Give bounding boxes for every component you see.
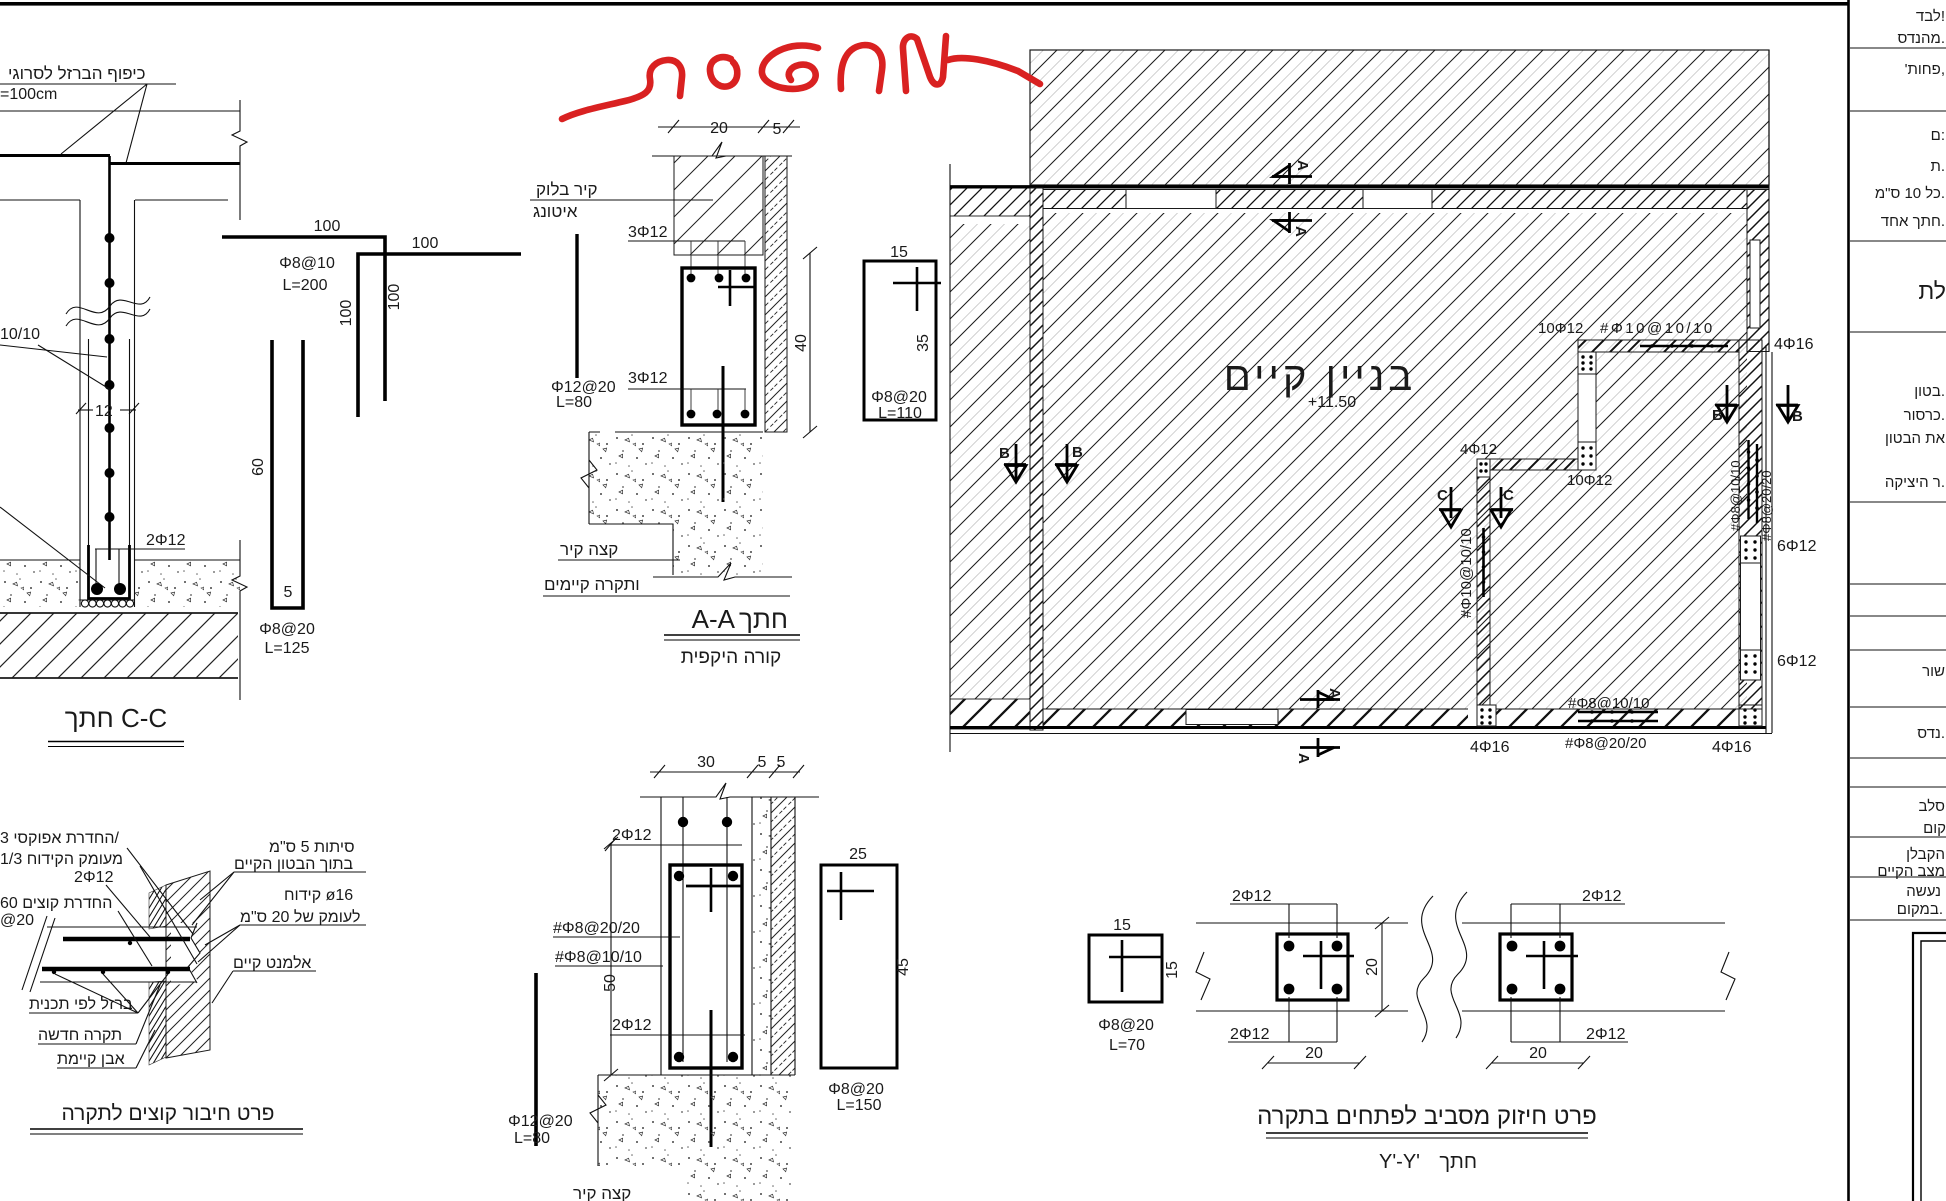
svg-text:#Φ8@10/10: #Φ8@10/10 xyxy=(555,949,642,966)
svg-text:Φ12@20: Φ12@20 xyxy=(508,1113,573,1130)
svg-text:שור: שור xyxy=(1922,663,1945,680)
svg-text:חתך: חתך xyxy=(739,604,788,634)
svg-text:#Φ8@10/10: #Φ8@10/10 xyxy=(1568,695,1649,712)
svg-text:קום: קום xyxy=(1923,820,1946,837)
svg-text:לעומק של 20 ס"מ: לעומק של 20 ס"מ xyxy=(240,908,361,926)
svg-text:100: 100 xyxy=(314,218,341,235)
svg-text:L=125: L=125 xyxy=(265,640,310,657)
svg-text:קצה קיר: קצה קיר xyxy=(560,540,618,559)
svg-text:2Φ12: 2Φ12 xyxy=(146,532,186,549)
svg-text:12: 12 xyxy=(95,403,113,420)
svg-text:5: 5 xyxy=(758,754,767,771)
svg-text:5: 5 xyxy=(777,754,786,771)
svg-text:5: 5 xyxy=(284,584,293,601)
svg-text:100: 100 xyxy=(338,300,355,327)
svg-text:כרסור.: כרסור. xyxy=(1904,407,1945,424)
svg-text:6Φ12: 6Φ12 xyxy=(1777,538,1817,555)
svg-text:בטון.: בטון. xyxy=(1914,383,1945,400)
svg-text:#Φ10@10/10: #Φ10@10/10 xyxy=(1458,528,1475,618)
svg-text:5: 5 xyxy=(773,121,782,138)
svg-text:Φ8@20: Φ8@20 xyxy=(828,1081,884,1098)
svg-text:@20: @20 xyxy=(0,912,34,929)
svg-text:4Φ16: 4Φ16 xyxy=(1712,739,1752,756)
svg-text:Y'-Y': Y'-Y' xyxy=(1379,1151,1420,1173)
svg-text:את הבטון: את הבטון xyxy=(1885,430,1946,447)
svg-text:סיתות 5 ס"מ: סיתות 5 ס"מ xyxy=(269,839,355,856)
svg-text:B: B xyxy=(1792,408,1803,425)
svg-text:A-A: A-A xyxy=(692,604,736,634)
svg-text:חתך אחד.: חתך אחד. xyxy=(1881,213,1945,230)
svg-text:4Φ16: 4Φ16 xyxy=(1470,739,1510,756)
svg-text:תקרה חדשה: תקרה חדשה xyxy=(38,1027,122,1044)
svg-text:Φ8@20: Φ8@20 xyxy=(259,621,315,638)
svg-text:15: 15 xyxy=(1113,917,1131,934)
svg-text:ברזל לפי תכנית: ברזל לפי תכנית xyxy=(29,995,133,1013)
svg-text:20: 20 xyxy=(1529,1045,1547,1062)
svg-text:ר היציקה.: ר היציקה. xyxy=(1885,474,1945,491)
svg-text:מצב הקיים: מצב הקיים xyxy=(1877,863,1945,880)
svg-text:20: 20 xyxy=(1364,958,1381,976)
svg-text:ותקרה קיימים: ותקרה קיימים xyxy=(544,575,640,594)
svg-text:במקום.: במקום. xyxy=(1897,901,1943,918)
svg-text:מהנדס.: מהנדס. xyxy=(1897,30,1945,47)
svg-text:קיר בלוק: קיר בלוק xyxy=(536,180,598,199)
svg-text:L=80: L=80 xyxy=(556,394,592,411)
svg-text:C: C xyxy=(1437,487,1448,504)
svg-text:איטונג: איטונג xyxy=(533,202,578,221)
svg-text:#Φ8@10/10: #Φ8@10/10 xyxy=(1728,460,1743,531)
svg-text:כל 10 ס"מ.: כל 10 ס"מ. xyxy=(1875,185,1945,202)
svg-text:נדס.: נדס. xyxy=(1917,725,1945,742)
svg-text:ם:: ם: xyxy=(1931,127,1945,144)
svg-text:Φ8@20: Φ8@20 xyxy=(871,389,927,406)
svg-text:קורה היקפית: קורה היקפית xyxy=(681,647,782,668)
svg-text:C: C xyxy=(1503,487,1514,504)
svg-text:החדרת אפוקסי 3/: החדרת אפוקסי 3/ xyxy=(0,830,120,847)
svg-text:פרט חיזוק מסביב לפתחים בתקרה: פרט חיזוק מסביב לפתחים בתקרה xyxy=(1257,1103,1597,1130)
svg-text:קצה קיר: קצה קיר xyxy=(573,1184,631,1201)
svg-text:2Φ12: 2Φ12 xyxy=(1586,1026,1626,1043)
svg-text:בתוך הבטון הקיים: בתוך הבטון הקיים xyxy=(234,856,354,873)
svg-text:חתך: חתך xyxy=(1439,1151,1477,1173)
svg-text:30: 30 xyxy=(697,754,715,771)
svg-text:B: B xyxy=(1712,407,1723,424)
svg-text:2Φ12: 2Φ12 xyxy=(612,827,652,844)
svg-text:15: 15 xyxy=(1164,961,1181,979)
svg-text:'פחות,: 'פחות, xyxy=(1905,61,1945,78)
svg-text:אבן קיימת: אבן קיימת xyxy=(57,1051,125,1068)
svg-text:10/10: 10/10 xyxy=(0,326,40,343)
svg-text:50: 50 xyxy=(602,974,619,992)
svg-text:10Φ12: 10Φ12 xyxy=(1538,320,1583,337)
svg-text:L=200: L=200 xyxy=(283,277,328,294)
svg-text:סלב: סלב xyxy=(1919,798,1946,815)
svg-text:לבד!: לבד! xyxy=(1916,8,1945,25)
svg-text:חתך C-C: חתך C-C xyxy=(65,703,167,733)
svg-text:ת.: ת. xyxy=(1930,158,1945,175)
svg-text:A: A xyxy=(1326,688,1343,699)
svg-text:#Φ8@20/20: #Φ8@20/20 xyxy=(553,920,640,937)
svg-text:40: 40 xyxy=(793,334,810,352)
svg-text:2Φ12: 2Φ12 xyxy=(1232,888,1272,905)
svg-text:3Φ12: 3Φ12 xyxy=(628,370,668,387)
svg-text:3Φ12: 3Φ12 xyxy=(628,224,668,241)
svg-text:+11.50: +11.50 xyxy=(1308,394,1356,411)
svg-text:=100cm: =100cm xyxy=(0,86,57,103)
svg-text:15: 15 xyxy=(890,244,908,261)
svg-text:Φ8@10: Φ8@10 xyxy=(279,255,335,272)
svg-text:פרט חיבור קוצים לתקרה: פרט חיבור קוצים לתקרה xyxy=(62,1102,275,1125)
svg-text:6Φ12: 6Φ12 xyxy=(1777,653,1817,670)
svg-text:L=70: L=70 xyxy=(1109,1037,1145,1054)
svg-text:לת: לת xyxy=(1918,278,1946,304)
svg-text:בניין קיים: בניין קיים xyxy=(1224,355,1416,399)
svg-text:45: 45 xyxy=(895,958,912,976)
svg-text:B: B xyxy=(999,445,1010,462)
svg-text:A: A xyxy=(1292,226,1309,237)
svg-text:#Φ10@10/10: #Φ10@10/10 xyxy=(1600,320,1715,337)
svg-text:Φ8@20: Φ8@20 xyxy=(1098,1017,1154,1034)
svg-text:20: 20 xyxy=(710,120,728,137)
svg-text:100: 100 xyxy=(412,235,439,252)
svg-text:4Φ16: 4Φ16 xyxy=(1774,336,1814,353)
svg-text:100: 100 xyxy=(386,284,403,311)
svg-text:20: 20 xyxy=(1305,1045,1323,1062)
svg-text:הקבלן: הקבלן xyxy=(1906,846,1945,863)
svg-text:L=150: L=150 xyxy=(837,1097,882,1114)
svg-text:A: A xyxy=(1295,753,1312,764)
svg-text:2Φ12: 2Φ12 xyxy=(74,869,114,886)
svg-text:2Φ12: 2Φ12 xyxy=(612,1017,652,1034)
svg-text:25: 25 xyxy=(849,846,867,863)
svg-text:2Φ12: 2Φ12 xyxy=(1582,888,1622,905)
svg-text:60: 60 xyxy=(250,458,267,476)
svg-text:L=110: L=110 xyxy=(878,405,922,422)
svg-text:נעשה: נעשה xyxy=(1906,883,1941,900)
svg-text:1/3 מעומק הקידוח: 1/3 מעומק הקידוח xyxy=(0,851,123,868)
svg-text:החדרת קוצים 60: החדרת קוצים 60 xyxy=(0,895,112,912)
svg-text:B: B xyxy=(1072,444,1083,461)
svg-text:קידוח ø16: קידוח ø16 xyxy=(284,887,353,904)
svg-text:4Φ12: 4Φ12 xyxy=(1460,441,1497,458)
svg-text:#Φ8@20/20: #Φ8@20/20 xyxy=(1565,735,1646,752)
svg-text:35: 35 xyxy=(915,334,932,352)
svg-text:10Φ12: 10Φ12 xyxy=(1567,472,1612,489)
svg-text:אלמנט קיים: אלמנט קיים xyxy=(233,954,311,972)
svg-text:A: A xyxy=(1294,160,1311,171)
svg-text:כיפוף הברזל לסרוגי: כיפוף הברזל לסרוגי xyxy=(8,64,146,83)
svg-text:L=80: L=80 xyxy=(514,1130,550,1147)
svg-text:2Φ12: 2Φ12 xyxy=(1230,1026,1270,1043)
